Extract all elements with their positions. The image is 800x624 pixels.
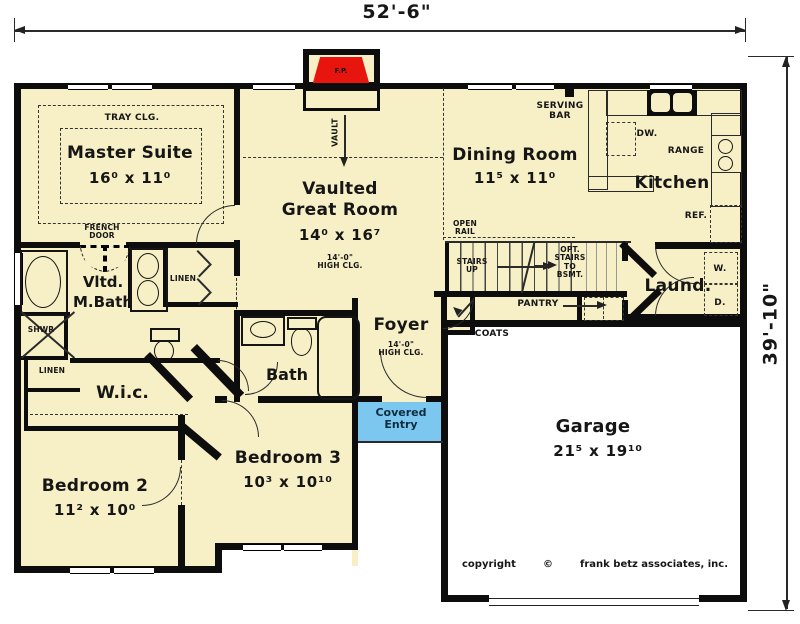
foyer-label: Foyer <box>362 316 440 335</box>
vault-arrow-line <box>344 115 346 157</box>
great-room-dims: 14⁰ x 16⁷ <box>270 227 410 244</box>
garage-door-line <box>489 598 699 606</box>
pantry-arrow-icon <box>597 301 607 309</box>
master-suite-label: Master Suite <box>55 144 205 163</box>
wall-linen2-left <box>24 360 28 430</box>
wall-master-greatroom <box>234 83 240 205</box>
window <box>112 84 152 90</box>
wall-bed3-right <box>352 400 358 550</box>
top-dimension-line <box>14 30 746 32</box>
exterior-patch <box>222 550 352 566</box>
tray-ceiling-inner <box>60 128 202 204</box>
window <box>68 84 108 90</box>
laundry-label: Laund. <box>638 277 718 296</box>
refrigerator-box <box>710 205 742 243</box>
master-suite-dims: 16⁰ x 11⁰ <box>55 170 205 187</box>
garage-label: Garage <box>528 417 658 437</box>
bedroom2-label: Bedroom 2 <box>40 477 150 496</box>
window <box>243 544 281 551</box>
range-burner <box>718 156 733 171</box>
pantry-arrow-line <box>563 305 597 307</box>
overall-depth-dimension: 39'-10" <box>760 268 781 380</box>
great-room-label-1: Vaulted <box>270 180 410 199</box>
wall-hall-greatroom <box>234 240 240 276</box>
copyright-line: copyright © frank betz associates, inc. <box>462 559 728 570</box>
wall-master-bottom-a <box>14 242 80 248</box>
bath-tub <box>317 316 360 400</box>
stairs-up-label: STAIRS UP <box>448 258 496 275</box>
open-rail-line <box>443 237 575 238</box>
copyright-symbol: © <box>543 559 553 570</box>
wic-label: W.i.c. <box>85 384 160 403</box>
garage-dims: 21⁵ x 19¹⁰ <box>528 443 668 460</box>
wall-entry-right <box>443 402 447 442</box>
window <box>468 84 512 90</box>
bath-label: Bath <box>255 366 319 384</box>
french-door-label: FRENCH DOOR <box>79 224 125 241</box>
greatroom-dining-divider <box>443 88 444 240</box>
window <box>253 84 295 90</box>
bath-sink <box>250 321 276 338</box>
toilet-bowl <box>154 340 174 362</box>
right-dim-tick-bottom <box>748 610 794 611</box>
floor-plan: 52'-6" 39'-10" F.P. <box>0 0 800 624</box>
wall-linen2-bottom <box>24 388 80 392</box>
wall-kitchen-stub <box>565 83 574 97</box>
copyright-firm: frank betz associates, inc. <box>580 559 728 570</box>
vault-arrow-icon <box>340 157 348 167</box>
pantry-label: PANTRY <box>513 299 563 309</box>
vanity-sink <box>137 280 159 306</box>
bedroom3-dims: 10³ x 10¹⁰ <box>232 474 344 491</box>
kitchen-sink-bowl <box>651 93 670 112</box>
right-dimension-line <box>786 57 788 609</box>
wall-garage-bottom-right <box>699 595 747 602</box>
top-dim-arrow-left <box>14 26 25 34</box>
shower-label: SHWR <box>20 326 62 334</box>
master-bath-label-2: M.Bath <box>68 294 138 311</box>
tray-ceiling-label: TRAY CLG. <box>92 113 172 123</box>
top-dim-tick-right <box>745 18 746 42</box>
bath-toilet-bowl <box>291 328 312 356</box>
dishwasher-label: DW. <box>632 129 662 139</box>
dryer-label: D. <box>706 298 734 308</box>
bedroom3-label: Bedroom 3 <box>232 449 344 468</box>
wic-shelf-line <box>30 414 188 415</box>
overall-width-dimension: 52'-6" <box>332 2 462 23</box>
window <box>114 567 154 574</box>
tub-basin <box>25 256 61 308</box>
range-label: RANGE <box>663 146 709 156</box>
serving-bar-label: SERVING BAR <box>530 101 590 121</box>
washer-label: W. <box>706 264 734 274</box>
kitchen-sink-bowl <box>673 93 692 112</box>
kitchen-label: Kitchen <box>612 174 732 193</box>
range-burner <box>718 139 733 154</box>
bedroom2-dims: 11² x 10⁰ <box>40 502 150 519</box>
window <box>516 84 554 90</box>
copyright-word: copyright <box>462 559 516 570</box>
great-room-label-2: Great Room <box>270 201 410 220</box>
right-dim-arrow-top <box>782 56 790 67</box>
vanity-sink <box>137 253 159 279</box>
right-dim-tick-top <box>748 56 794 57</box>
serving-bar-counter <box>588 90 608 190</box>
fireplace-label: F.P. <box>325 68 357 76</box>
top-dim-tick-left <box>14 18 15 42</box>
linen2-label: LINEN <box>30 367 74 375</box>
coats-label: COATS <box>468 329 516 339</box>
wall-pantry-left <box>577 297 582 323</box>
wall-bed-divider-b <box>178 505 185 566</box>
wall-wic-bottom <box>24 426 186 431</box>
cased-opening-hall <box>236 278 237 314</box>
dining-room-dims: 11⁵ x 11⁰ <box>445 170 585 187</box>
wall-garage-bottom-left <box>441 595 489 602</box>
covered-entry-label: Covered Entry <box>360 407 442 432</box>
ref-label: REF. <box>682 211 710 221</box>
open-rail-label: OPEN RAIL <box>444 220 486 237</box>
wall-garage-top <box>441 320 747 327</box>
vault-label: VAULT <box>332 114 341 150</box>
hearth <box>303 88 380 111</box>
wall-bed-step <box>215 543 222 573</box>
opt-stairs-arrow-line <box>534 265 548 267</box>
master-bath-label-1: Vltd. <box>75 274 131 291</box>
window <box>70 567 110 574</box>
dining-room-label: Dining Room <box>445 146 585 165</box>
entry-edge-line <box>358 441 443 443</box>
opt-stairs-label: OPT. STAIRS TO BSMT. <box>548 246 592 280</box>
linen1-label: LINEN <box>162 275 204 283</box>
great-room-ceiling: 14'-0" HIGH CLG. <box>305 254 375 271</box>
bed2-door-opening <box>181 460 182 505</box>
foyer-ceiling: 14'-0" HIGH CLG. <box>368 341 434 358</box>
window <box>284 544 322 551</box>
